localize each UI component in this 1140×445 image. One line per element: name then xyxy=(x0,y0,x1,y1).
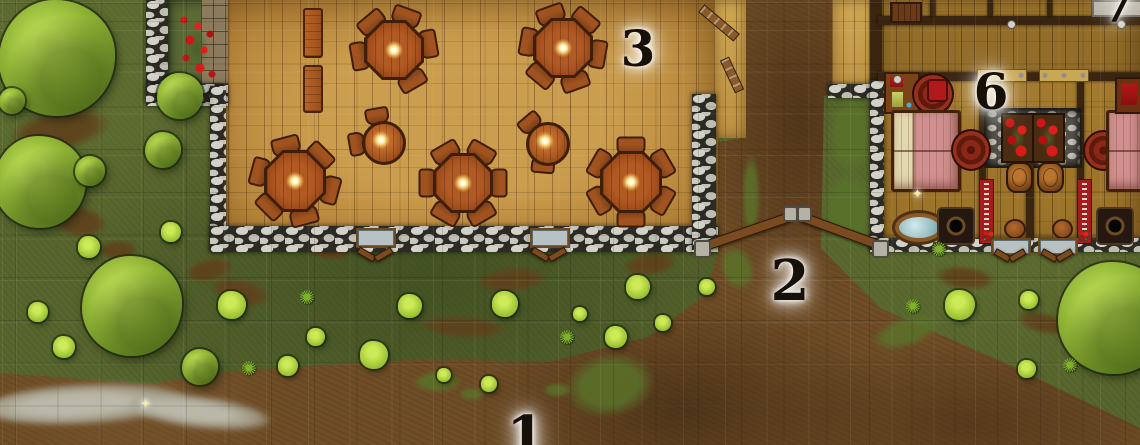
location-label-3: 3 xyxy=(621,24,656,74)
top-room-divider xyxy=(1047,0,1052,16)
tree xyxy=(157,73,203,119)
double-bed xyxy=(1106,110,1140,192)
tavern-wall-south xyxy=(210,226,718,252)
candle-icon xyxy=(385,41,403,59)
window xyxy=(358,230,394,246)
keg xyxy=(1037,162,1064,193)
bench xyxy=(303,65,323,113)
plant-icon: ✺ xyxy=(559,329,575,348)
inn-wall-west xyxy=(870,80,884,252)
grass-tuft xyxy=(543,383,571,397)
bush xyxy=(492,291,518,317)
door xyxy=(890,2,922,23)
bush xyxy=(437,368,451,382)
bush xyxy=(28,302,48,322)
plant-icon: ✺ xyxy=(1062,357,1078,376)
chair-cushion xyxy=(927,79,948,102)
candle-icon xyxy=(286,172,304,190)
sparkle-icon: ✦ xyxy=(140,398,151,411)
bush xyxy=(945,290,975,320)
location-label-1: 1 xyxy=(507,409,546,445)
candle-icon xyxy=(454,174,472,192)
battle-map-canvas[interactable]: ✦✦✺✺✺✺✺✺ 12367 xyxy=(0,0,1140,445)
flower-planter xyxy=(1032,113,1065,163)
bench xyxy=(303,8,323,58)
tavern-wall-east xyxy=(692,94,716,252)
stool xyxy=(1004,219,1026,239)
dirt-patch xyxy=(475,264,549,296)
wall-sconce xyxy=(1007,20,1016,29)
bush xyxy=(307,328,325,346)
window xyxy=(532,230,568,246)
gate-post xyxy=(872,240,889,258)
bush xyxy=(626,275,650,299)
tree xyxy=(145,132,181,168)
candle-icon xyxy=(536,132,554,150)
dirt-patch xyxy=(933,263,997,293)
tree xyxy=(75,156,105,186)
stool xyxy=(1052,219,1073,239)
plant-icon: ✺ xyxy=(931,241,947,260)
bush xyxy=(398,294,422,318)
dirt-patch xyxy=(621,248,680,280)
candle-icon xyxy=(622,173,640,191)
plant-icon: ✺ xyxy=(241,360,257,379)
tree xyxy=(82,256,182,356)
inn-wall-west-wood xyxy=(870,0,882,82)
plant-icon: ✺ xyxy=(299,289,315,308)
plant-icon: ✺ xyxy=(905,298,921,317)
bush xyxy=(605,326,627,348)
bush xyxy=(78,236,100,258)
bush xyxy=(161,222,181,242)
tree xyxy=(182,349,218,385)
candle-icon xyxy=(372,131,390,149)
round-rug xyxy=(951,129,991,171)
location-label-6: 6 xyxy=(974,67,1009,117)
top-room-divider xyxy=(988,0,993,16)
grass-tuft xyxy=(459,388,485,400)
dirt-patch xyxy=(417,314,508,341)
gate-post xyxy=(694,240,711,258)
bush xyxy=(218,291,246,319)
bush xyxy=(655,315,671,331)
bush xyxy=(53,336,75,358)
sparkle-icon: ✦ xyxy=(912,188,923,201)
side-desk xyxy=(1115,77,1140,114)
bush xyxy=(360,341,388,369)
grass-tuft xyxy=(829,93,873,177)
bush xyxy=(1020,291,1038,309)
bush xyxy=(481,376,497,392)
top-room-divider xyxy=(930,0,935,16)
candle-icon xyxy=(554,39,572,57)
bush xyxy=(573,307,587,321)
bush xyxy=(278,356,298,376)
gate-post xyxy=(797,206,812,222)
bush xyxy=(1018,360,1036,378)
keg xyxy=(1006,162,1033,193)
location-label-7: 7 xyxy=(1101,0,1136,30)
flower-box xyxy=(983,230,994,241)
location-label-2: 2 xyxy=(771,253,810,309)
gate-post xyxy=(783,206,798,222)
flower-box xyxy=(1078,230,1089,241)
bush xyxy=(699,279,715,295)
tree xyxy=(0,88,25,114)
red-flower-vine xyxy=(176,14,218,82)
wall-sconce xyxy=(893,75,902,84)
privy-mat xyxy=(1096,207,1134,245)
open-door-panel xyxy=(1039,69,1089,82)
